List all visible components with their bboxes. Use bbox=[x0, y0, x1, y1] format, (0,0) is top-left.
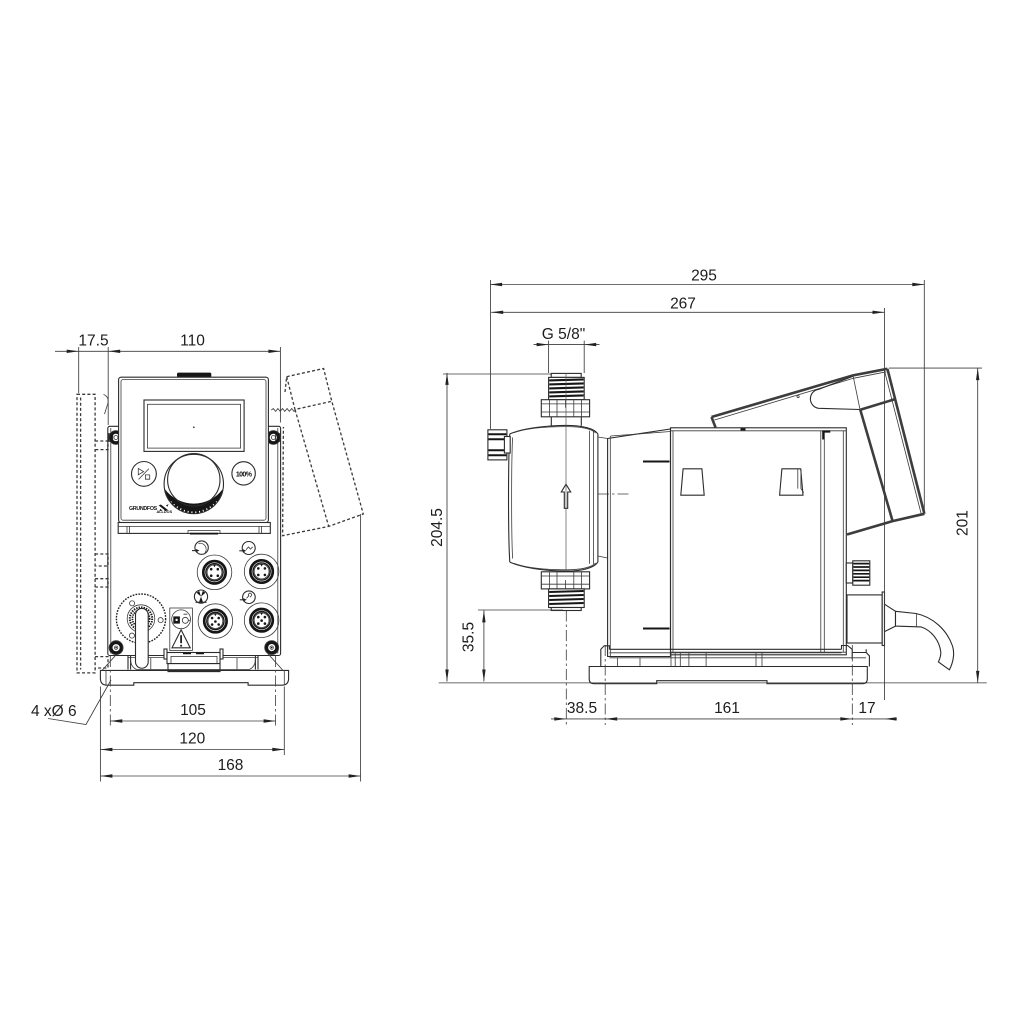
svg-text:38.5: 38.5 bbox=[567, 700, 597, 717]
svg-text:267: 267 bbox=[670, 295, 696, 312]
svg-text:105: 105 bbox=[180, 702, 206, 719]
svg-text:120: 120 bbox=[179, 731, 205, 748]
svg-text:168: 168 bbox=[218, 757, 244, 774]
svg-text:295: 295 bbox=[691, 268, 717, 285]
svg-text:17: 17 bbox=[858, 700, 875, 717]
svg-text:110: 110 bbox=[180, 333, 205, 350]
svg-text:4 xØ 6: 4 xØ 6 bbox=[31, 703, 77, 720]
svg-text:35.5: 35.5 bbox=[461, 622, 478, 652]
svg-text:161: 161 bbox=[714, 700, 740, 717]
svg-text:ALLDOS: ALLDOS bbox=[157, 510, 173, 514]
svg-text:204.5: 204.5 bbox=[429, 508, 446, 547]
svg-text:100%: 100% bbox=[236, 472, 253, 479]
svg-text:GRUNDFOS: GRUNDFOS bbox=[129, 506, 158, 512]
svg-text:G 5/8": G 5/8" bbox=[542, 326, 585, 343]
svg-text:201: 201 bbox=[955, 510, 972, 536]
svg-text:17.5: 17.5 bbox=[78, 333, 108, 350]
